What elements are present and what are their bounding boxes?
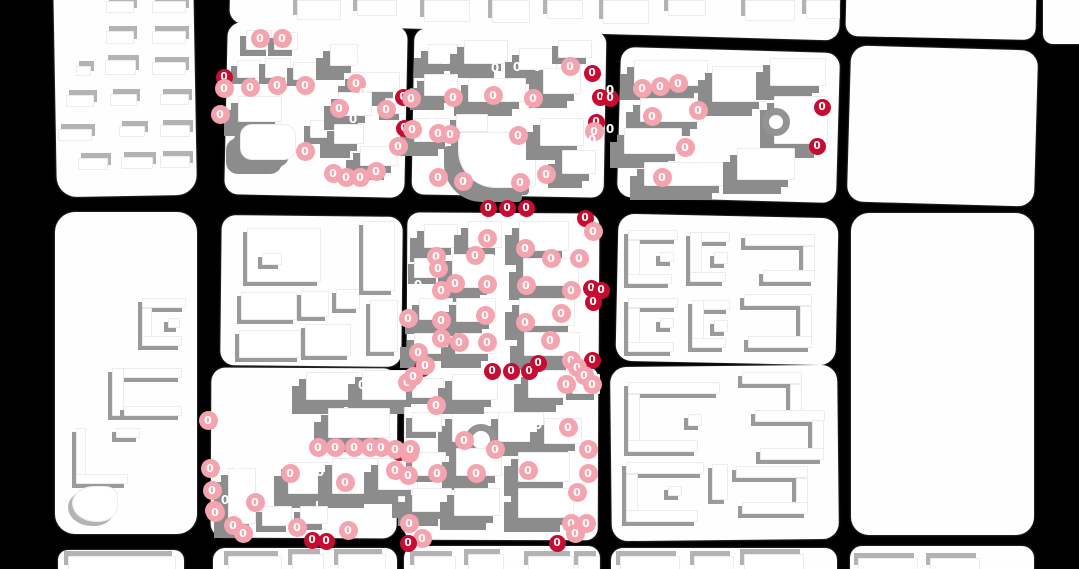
count-badge-pink[interactable]: 0 <box>568 483 587 502</box>
building <box>78 158 108 170</box>
count-badge-red[interactable]: 0 <box>499 200 516 217</box>
building <box>742 502 808 514</box>
building <box>626 462 704 474</box>
count-badge-pink[interactable]: 0 <box>432 329 451 348</box>
count-label: 0 <box>434 223 448 237</box>
building <box>119 126 145 137</box>
building <box>328 408 390 438</box>
building <box>124 406 182 416</box>
building <box>628 274 672 284</box>
count-label: 0 <box>421 378 435 392</box>
count-badge-pink[interactable]: 0 <box>336 473 355 492</box>
count-badge-pink[interactable]: 0 <box>579 464 598 483</box>
building <box>142 336 182 346</box>
count-label: 0 <box>411 278 425 292</box>
count-badge-pink[interactable]: 0 <box>486 440 505 459</box>
building <box>603 0 649 24</box>
count-badge-pink[interactable]: 0 <box>432 281 451 300</box>
building <box>748 336 812 348</box>
count-badge-pink[interactable]: 0 <box>296 76 315 95</box>
building <box>160 156 190 168</box>
building <box>562 150 596 174</box>
building <box>76 474 128 484</box>
city-block <box>847 45 1038 206</box>
count-badge-pink[interactable]: 0 <box>402 89 421 108</box>
count-badge-pink[interactable]: 0 <box>516 313 535 332</box>
count-badge-pink[interactable]: 0 <box>478 333 497 352</box>
building <box>858 558 918 569</box>
count-badge-pink[interactable]: 0 <box>444 88 463 107</box>
count-label: 0 <box>230 466 244 480</box>
building <box>370 300 398 352</box>
count-badge-red[interactable]: 0 <box>584 65 601 82</box>
count-badge-red[interactable]: 0 <box>530 355 547 372</box>
count-badge-pink[interactable]: 0 <box>281 464 300 483</box>
building <box>424 0 470 22</box>
building <box>578 556 600 569</box>
building <box>744 554 804 569</box>
building <box>760 448 824 460</box>
count-label: 0 <box>603 122 617 136</box>
building <box>628 230 678 240</box>
count-badge-pink[interactable]: 0 <box>429 168 448 187</box>
count-badge-pink[interactable]: 0 <box>524 89 543 108</box>
count-badge-pink[interactable]: 0 <box>288 518 307 537</box>
count-badge-pink[interactable]: 0 <box>541 331 560 350</box>
building <box>262 506 292 526</box>
count-badge-pink[interactable]: 0 <box>570 249 589 268</box>
building <box>668 0 706 16</box>
count-badge-pink[interactable]: 0 <box>484 86 503 105</box>
building <box>142 298 186 308</box>
building <box>112 368 124 416</box>
count-badge-pink[interactable]: 0 <box>511 173 530 192</box>
building <box>110 94 137 106</box>
building <box>744 294 812 306</box>
building <box>72 486 118 522</box>
building <box>628 298 678 308</box>
building <box>456 114 488 132</box>
building <box>547 0 583 19</box>
building <box>292 554 324 569</box>
count-badge-pink[interactable]: 0 <box>206 503 225 522</box>
building <box>736 466 808 478</box>
building <box>414 556 456 569</box>
building <box>66 95 94 107</box>
building <box>745 0 795 21</box>
building <box>262 253 282 265</box>
count-label: 0 <box>313 465 327 479</box>
count-badge-pink[interactable]: 0 <box>476 306 495 325</box>
count-badge-pink[interactable]: 0 <box>404 367 423 386</box>
building <box>712 464 728 500</box>
count-badge-pink[interactable]: 0 <box>519 461 538 480</box>
count-label: 0 <box>351 56 365 70</box>
building <box>76 66 91 76</box>
count-badge-pink[interactable]: 0 <box>201 459 220 478</box>
building <box>770 58 826 86</box>
count-label: 0 <box>438 53 452 67</box>
building <box>692 338 726 348</box>
count-label: 0 <box>263 105 277 119</box>
count-badge-red[interactable]: 0 <box>585 294 602 311</box>
count-label: 0 <box>488 61 502 75</box>
building <box>336 289 360 309</box>
count-badge-pink[interactable]: 0 <box>339 521 358 540</box>
count-badge-red[interactable]: 0 <box>809 138 826 155</box>
count-badge-red[interactable]: 0 <box>400 535 417 552</box>
building <box>412 412 442 432</box>
building <box>116 428 140 438</box>
building <box>160 125 190 137</box>
building <box>301 291 329 317</box>
count-label: 0 <box>335 53 349 67</box>
count-badge-pink[interactable]: 0 <box>566 524 585 543</box>
building <box>305 324 351 356</box>
count-badge-pink[interactable]: 0 <box>429 259 448 278</box>
count-badge-pink[interactable]: 0 <box>326 438 345 457</box>
count-label: 0 <box>531 377 545 391</box>
building <box>228 556 282 569</box>
roundabout-ring <box>762 108 790 136</box>
building <box>558 40 592 58</box>
city-map-canvas[interactable]: 0000000000000000000000000000000000000000… <box>0 0 1079 569</box>
count-badge-pink[interactable]: 0 <box>268 76 287 95</box>
count-label: 0 <box>603 83 617 97</box>
count-badge-pink[interactable]: 0 <box>579 440 598 459</box>
count-badge-pink[interactable]: 0 <box>427 396 446 415</box>
count-badge-pink[interactable]: 0 <box>552 304 571 323</box>
building <box>468 554 504 569</box>
count-label: 0 <box>510 60 524 74</box>
count-badge-pink[interactable]: 0 <box>653 168 672 187</box>
count-badge-pink[interactable]: 0 <box>689 101 708 120</box>
building <box>628 342 674 352</box>
count-label: 0 <box>465 223 479 237</box>
count-badge-pink[interactable]: 0 <box>241 78 260 97</box>
count-badge-pink[interactable]: 0 <box>273 29 292 48</box>
count-badge-pink[interactable]: 0 <box>367 162 386 181</box>
count-badge-pink[interactable]: 0 <box>309 438 328 457</box>
count-badge-pink[interactable]: 0 <box>557 375 576 394</box>
building <box>237 60 261 78</box>
count-badge-pink[interactable]: 0 <box>441 125 460 144</box>
count-label: 0 <box>530 60 544 74</box>
building <box>737 148 795 180</box>
count-badge-pink[interactable]: 0 <box>583 375 602 394</box>
building <box>694 556 734 569</box>
building <box>624 128 682 154</box>
count-badge-pink[interactable]: 0 <box>467 464 486 483</box>
count-badge-pink[interactable]: 0 <box>400 514 419 533</box>
building <box>660 318 674 328</box>
count-badge-pink[interactable]: 0 <box>246 493 265 512</box>
count-label: 0 <box>460 375 474 389</box>
count-badge-pink[interactable]: 0 <box>251 29 270 48</box>
count-badge-pink[interactable]: 0 <box>516 239 535 258</box>
count-badge-pink[interactable]: 0 <box>537 165 556 184</box>
building <box>168 318 180 328</box>
building <box>357 0 397 16</box>
count-badge-pink[interactable]: 0 <box>676 138 695 157</box>
building <box>518 488 574 518</box>
count-badge-red[interactable]: 0 <box>318 533 335 550</box>
count-badge-pink[interactable]: 0 <box>561 57 580 76</box>
count-badge-pink[interactable]: 0 <box>509 126 528 145</box>
count-badge-pink[interactable]: 0 <box>215 79 234 98</box>
building <box>58 129 92 141</box>
building <box>628 440 698 452</box>
building <box>106 31 134 44</box>
building <box>454 488 500 516</box>
building <box>626 510 698 522</box>
building <box>240 124 296 160</box>
building <box>668 486 682 496</box>
count-badge-red[interactable]: 0 <box>814 99 831 116</box>
building <box>68 556 176 569</box>
building <box>690 272 726 282</box>
count-badge-pink[interactable]: 0 <box>454 172 473 191</box>
building <box>160 94 189 105</box>
count-badge-pink[interactable]: 0 <box>399 309 418 328</box>
building <box>297 0 341 20</box>
count-label: 0 <box>315 378 329 392</box>
count-badge-pink[interactable]: 0 <box>199 411 218 430</box>
building <box>464 40 508 64</box>
building <box>152 31 186 44</box>
building <box>334 124 364 144</box>
city-block <box>845 0 1036 40</box>
building <box>930 558 980 569</box>
count-badge-pink[interactable]: 0 <box>633 79 652 98</box>
count-label: 0 <box>585 133 599 147</box>
count-label: 0 <box>531 418 545 432</box>
count-badge-red[interactable]: 0 <box>480 200 497 217</box>
building <box>528 556 574 569</box>
count-badge-red[interactable]: 0 <box>484 363 501 380</box>
count-badge-pink[interactable]: 0 <box>517 276 536 295</box>
count-badge-pink[interactable]: 0 <box>559 418 578 437</box>
count-badge-pink[interactable]: 0 <box>432 311 451 330</box>
count-badge-pink[interactable]: 0 <box>643 107 662 126</box>
count-badge-pink[interactable]: 0 <box>478 275 497 294</box>
count-badge-pink[interactable]: 0 <box>389 137 408 156</box>
building <box>806 0 840 19</box>
count-badge-pink[interactable]: 0 <box>466 246 485 265</box>
count-badge-red[interactable]: 0 <box>518 200 535 217</box>
count-label: 0 <box>346 112 360 126</box>
building <box>714 252 728 264</box>
count-badge-pink[interactable]: 0 <box>403 120 422 139</box>
building <box>628 382 720 394</box>
building <box>688 414 702 426</box>
building <box>105 60 136 75</box>
count-badge-pink[interactable]: 0 <box>211 105 230 124</box>
count-badge-pink[interactable]: 0 <box>651 77 670 96</box>
count-badge-pink[interactable]: 0 <box>399 466 418 485</box>
count-badge-pink[interactable]: 0 <box>455 431 474 450</box>
count-badge-pink[interactable]: 0 <box>401 440 420 459</box>
building <box>121 157 153 169</box>
count-badge-pink[interactable]: 0 <box>542 249 561 268</box>
building <box>247 228 321 282</box>
building <box>660 252 674 262</box>
building <box>742 372 802 384</box>
building <box>106 1 134 13</box>
building <box>492 0 530 23</box>
count-badge-pink[interactable]: 0 <box>669 74 688 93</box>
building <box>714 320 728 332</box>
building <box>152 62 186 75</box>
building <box>745 234 815 246</box>
count-label: 0 <box>355 378 369 392</box>
building <box>152 1 186 13</box>
city-block <box>851 213 1034 535</box>
count-badge-pink[interactable]: 0 <box>234 524 253 543</box>
count-badge-pink[interactable]: 0 <box>330 99 349 118</box>
count-badge-red[interactable]: 0 <box>549 535 566 552</box>
building <box>241 292 297 320</box>
building <box>763 270 815 282</box>
building <box>239 330 301 358</box>
building <box>620 556 680 569</box>
count-badge-pink[interactable]: 0 <box>584 222 603 241</box>
count-badge-red[interactable]: 0 <box>503 363 520 380</box>
count-badge-pink[interactable]: 0 <box>478 229 497 248</box>
count-badge-pink[interactable]: 0 <box>377 100 396 119</box>
building <box>338 554 386 569</box>
count-label: 0 <box>356 86 370 100</box>
count-badge-pink[interactable]: 0 <box>450 333 469 352</box>
building <box>540 118 584 146</box>
city-block <box>1043 0 1079 44</box>
building <box>363 221 395 291</box>
count-badge-pink[interactable]: 0 <box>296 142 315 161</box>
count-badge-pink[interactable]: 0 <box>562 281 581 300</box>
count-badge-pink[interactable]: 0 <box>428 464 447 483</box>
